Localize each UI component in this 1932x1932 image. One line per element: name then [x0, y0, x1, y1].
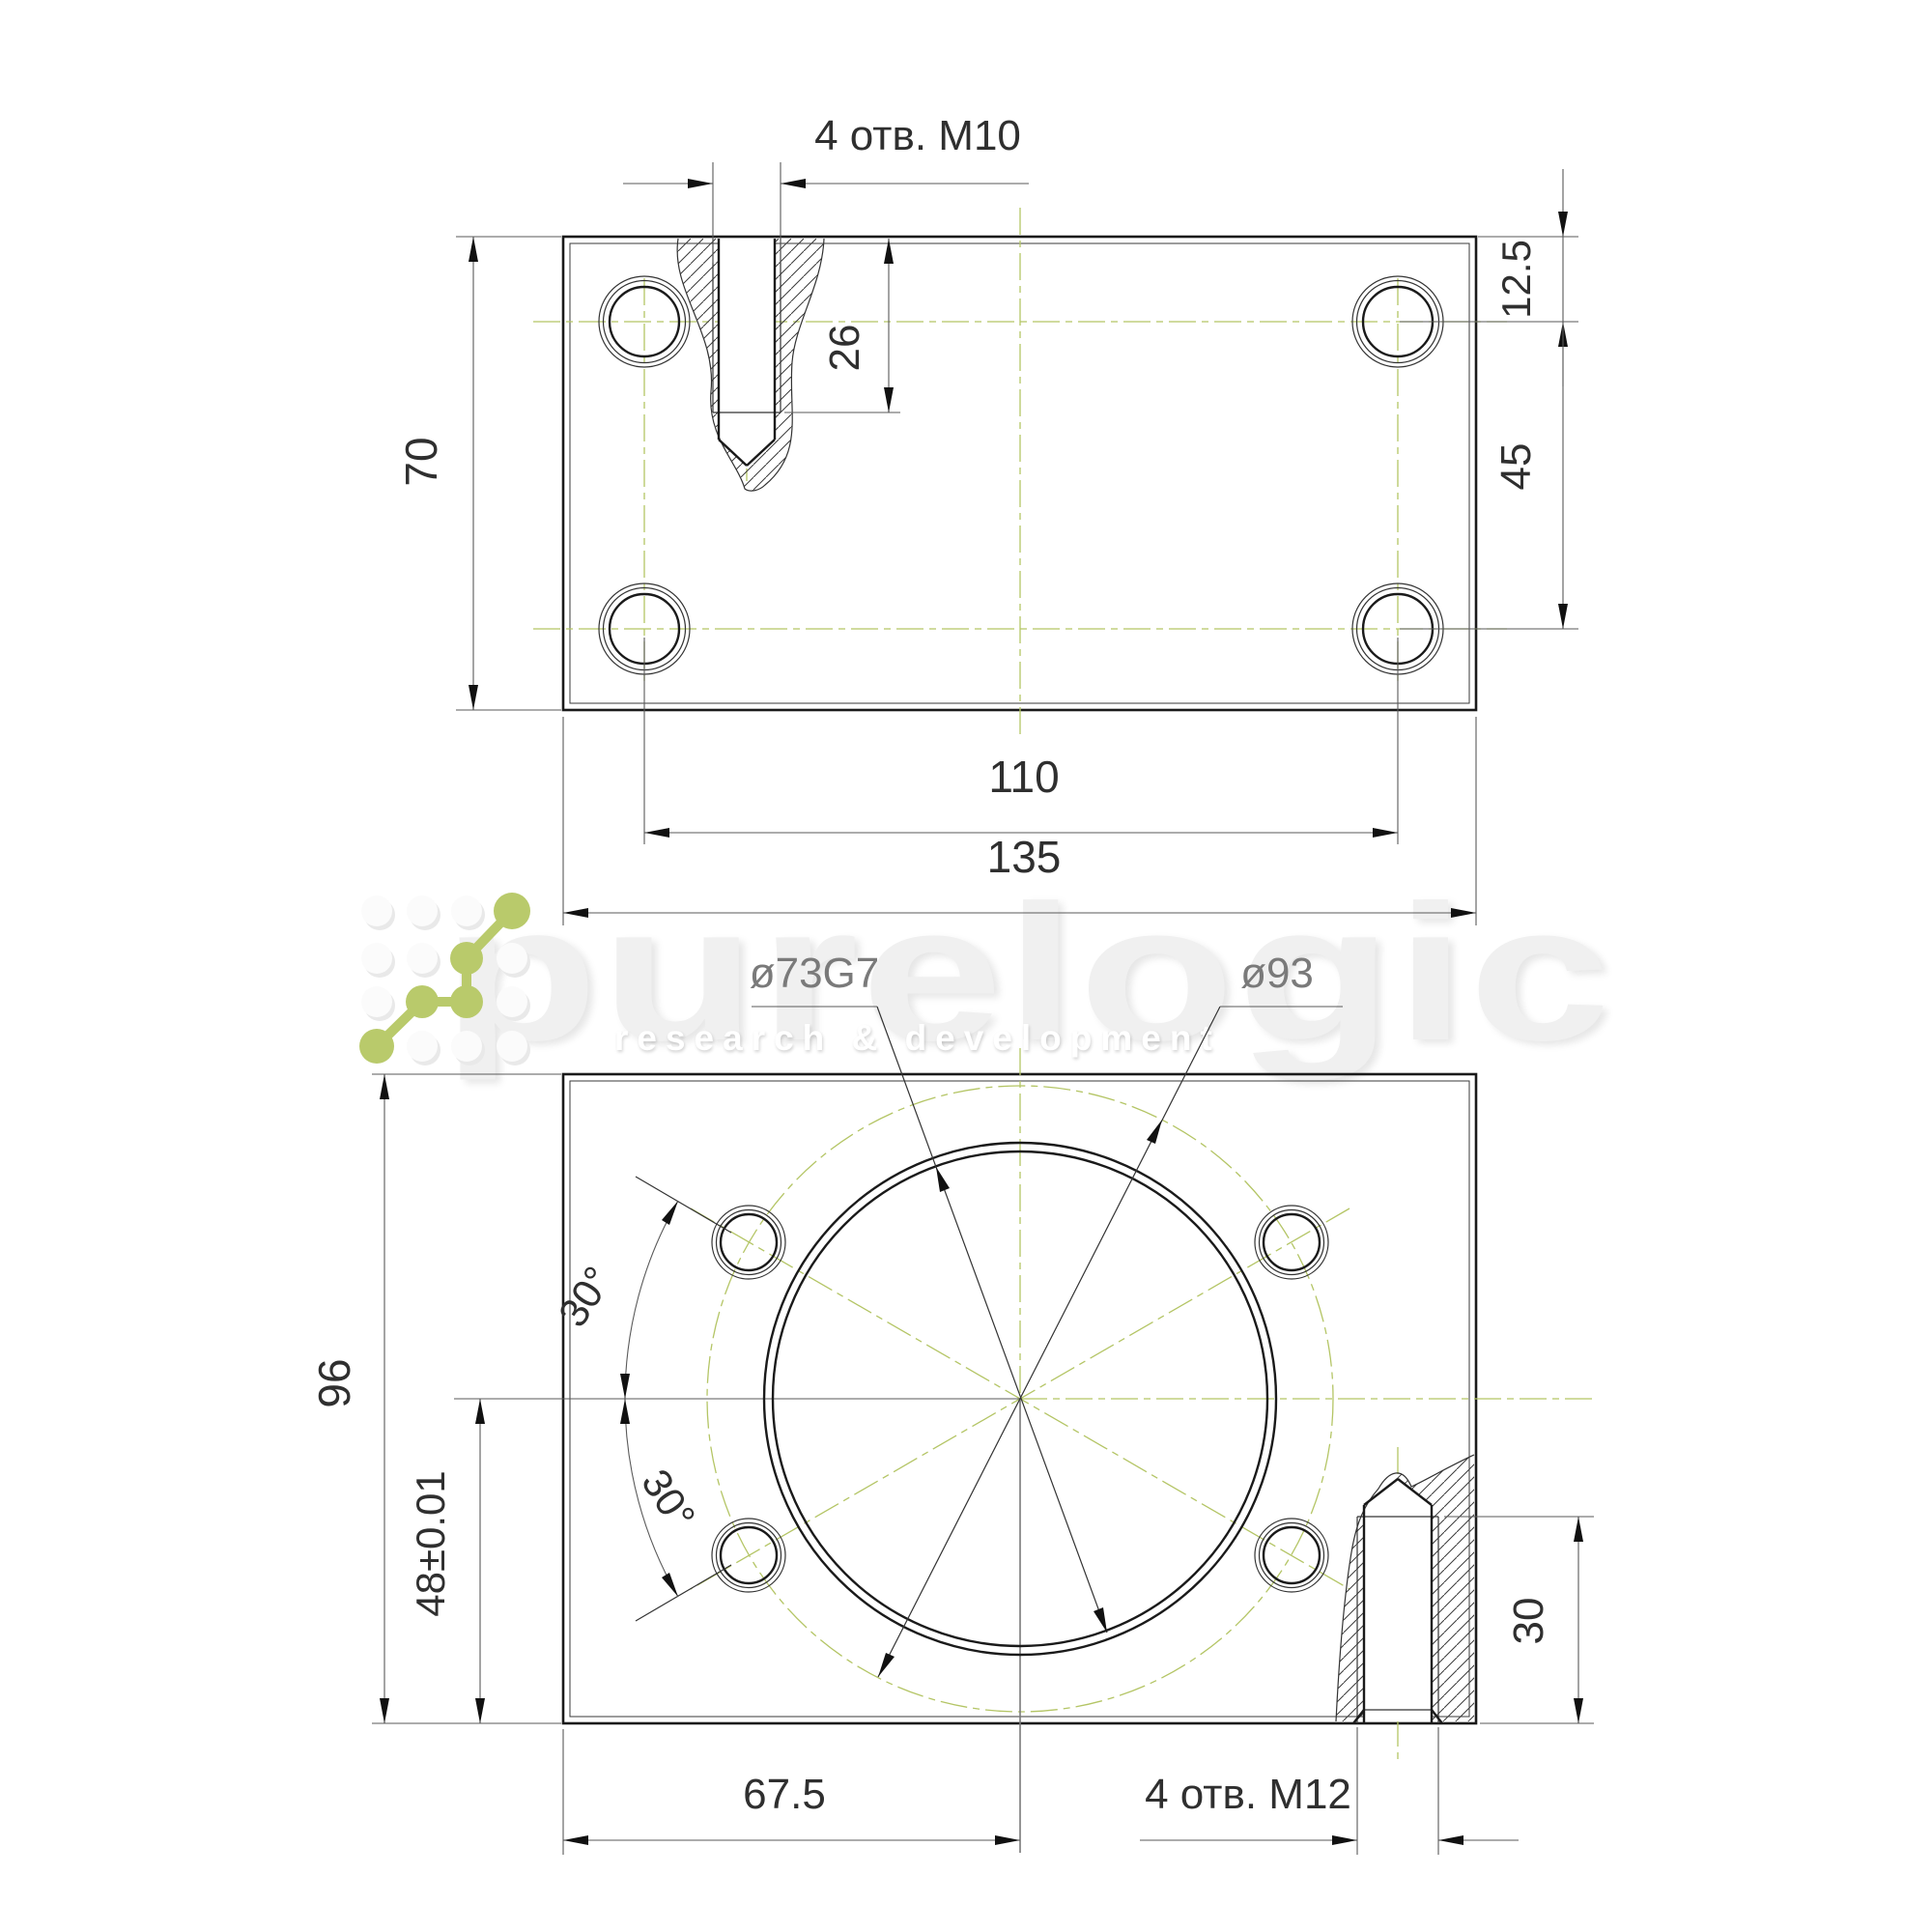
front-view-breakout-section: [1336, 1455, 1474, 1723]
front-view-dimensions: 96 48±0.01 67.5 4 отв. М12: [309, 1074, 1594, 1855]
label-row-spacing-45: 45: [1492, 443, 1540, 491]
label-width-135: 135: [987, 832, 1062, 882]
drawing-page: purelogic research & development: [0, 0, 1932, 1932]
label-bore-diameter: ø73G7: [750, 950, 880, 997]
label-m10-holes: 4 отв. М10: [814, 112, 1021, 159]
label-center-offset: 67.5: [743, 1771, 826, 1818]
label-center-height: 48±0.01: [408, 1470, 453, 1617]
top-view-breakout-section: [677, 239, 824, 491]
technical-drawing: 4 отв. М10 26 70 12.5: [0, 0, 1932, 1932]
watermark-logo-icon: [359, 893, 530, 1065]
label-thread-depth-26: 26: [821, 325, 868, 372]
label-spacing-110: 110: [988, 752, 1059, 802]
front-view: ø73G7 ø93 30° 30°: [309, 950, 1596, 1855]
label-angle-lower: 30°: [633, 1462, 704, 1538]
label-angle-upper: 30°: [550, 1259, 621, 1335]
label-bolt-circle-diameter: ø93: [1240, 950, 1314, 997]
label-offset-12-5: 12.5: [1493, 240, 1539, 319]
label-height-96: 96: [309, 1358, 359, 1407]
top-view-dimensions: 4 отв. М10 26 70 12.5: [396, 112, 1578, 925]
label-height-70: 70: [396, 437, 446, 486]
top-view: 4 отв. М10 26 70 12.5: [396, 112, 1578, 925]
label-thread-depth-30: 30: [1505, 1598, 1552, 1645]
label-m12-holes: 4 отв. М12: [1145, 1771, 1351, 1818]
